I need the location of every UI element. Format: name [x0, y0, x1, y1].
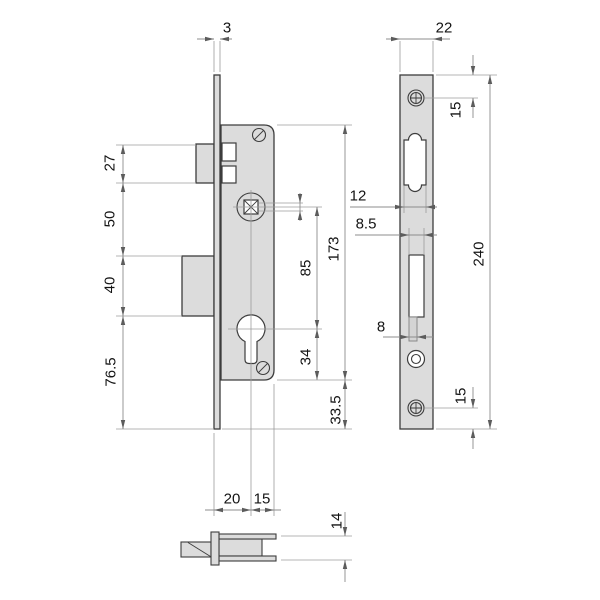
case-section-body — [219, 539, 262, 556]
latch-bolt-section — [181, 542, 211, 557]
faceplate-section — [211, 532, 219, 565]
dim-cylinder-to-case-end: 34 — [298, 349, 315, 366]
cylinder-fixing-hole-icon — [408, 351, 425, 368]
dim-screw-top-offset: 15 — [448, 102, 465, 119]
latch-bolt-tail-lower — [222, 166, 236, 183]
dim-plate-length: 240 — [471, 241, 488, 266]
front-view — [400, 75, 433, 429]
dim-gap-latch-deadbolt: 50 — [102, 211, 119, 228]
dim-plate-width-lines — [386, 37, 450, 72]
section-view — [181, 532, 276, 565]
dim-latch-height: 27 — [102, 155, 119, 172]
drawing-canvas: 27 50 40 76.5 3 22 85 34 17 — [0, 0, 600, 600]
dim-slot-width: 8 — [377, 319, 385, 336]
faceplate-edge — [214, 75, 220, 429]
plate-screw-bottom-icon — [408, 400, 424, 416]
dim-spindle-to-cylinder: 85 — [298, 260, 315, 277]
faceplate-front — [400, 75, 433, 429]
dim-deadbolt-height: 40 — [102, 277, 119, 294]
dim-latch-cutout-width: 12 — [350, 188, 367, 205]
dim-case-to-plate-end: 33.5 — [328, 395, 345, 424]
dim-case-depth: 14 — [329, 513, 346, 530]
dim-plate-thickness-lines — [197, 37, 232, 72]
dim-deadbolt-cutout-width: 8.5 — [356, 216, 377, 233]
dim-below-deadbolt: 76.5 — [103, 357, 120, 386]
dimensions: 27 50 40 76.5 3 22 85 34 17 — [102, 20, 498, 583]
latch-bolt-tail-upper — [222, 143, 236, 161]
case-section-flange-top — [219, 534, 276, 539]
dim-plate-width: 22 — [436, 20, 453, 37]
side-view — [182, 75, 322, 516]
dim-plate-thickness: 3 — [223, 20, 231, 37]
dim-plate-length-lines — [488, 75, 492, 429]
lock-technical-drawing: 27 50 40 76.5 3 22 85 34 17 — [0, 0, 600, 600]
dim-case-height: 173 — [326, 236, 343, 261]
dim-center-to-case-edge: 15 — [254, 491, 271, 508]
dim-screw-bottom-offset: 15 — [453, 388, 470, 405]
deadbolt-cutout — [409, 255, 424, 317]
dim-85-34-lines — [315, 207, 319, 380]
dim-backset: 20 — [224, 491, 241, 508]
plate-screw-top-icon — [408, 90, 424, 106]
latch-cutout — [404, 134, 426, 192]
case-section-flange-bottom — [219, 556, 276, 561]
latch-bolt-head — [196, 144, 214, 183]
deadbolt-head — [182, 256, 214, 316]
